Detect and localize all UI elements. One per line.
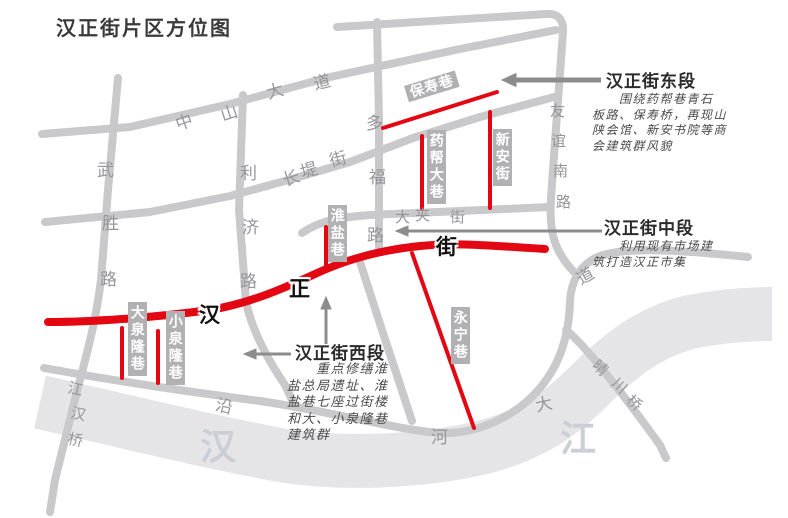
wusheng-road-char-0: 武 xyxy=(97,156,114,181)
huaiyan-alley-label: 淮盐巷 xyxy=(328,205,347,262)
page-title: 汉正街片区方位图 xyxy=(56,12,232,41)
annotation-west-body: 重点修缮淮 盐总局遗址、淮 盐巷七座过街楼 和大、小泉隆巷 建筑群 xyxy=(287,362,405,445)
youyi-south-road-char-1: 谊 xyxy=(551,130,566,151)
west-annotation-left-arrowhead xyxy=(244,349,256,359)
annotation-mid-body: 利用现有市场建 筑打造汉正市集 xyxy=(592,239,744,270)
hanzheng-street-name-char-1: 正 xyxy=(289,273,310,303)
annotation-west-heading: 汉正街西段 xyxy=(295,339,385,364)
yaobang-alley-label: 药帮大巷 xyxy=(427,130,446,204)
dajia-street-char-2: 街 xyxy=(450,206,465,227)
annotation-mid-heading: 汉正街中段 xyxy=(604,214,694,239)
hanzheng-map-figure: 汉正街片区方位图 中山大道长堤街武胜路利济路多福路大夹街友谊南路沿河大道江汉桥晴… xyxy=(0,0,788,518)
baoshou-alley-red xyxy=(383,92,497,128)
mid-annotation-arrowhead xyxy=(396,226,408,236)
youyi-south-road-char-0: 友 xyxy=(550,100,565,121)
wusheng-road-char-2: 路 xyxy=(100,265,117,290)
xiaoquanlong-alley-label: 小泉隆巷 xyxy=(166,311,185,385)
duofu-road-char-1: 福 xyxy=(369,163,386,188)
dajia-street-char-1: 夹 xyxy=(415,204,430,225)
liji-road-road xyxy=(239,95,293,402)
west-annotation-up-arrowhead xyxy=(321,297,331,309)
yongning-alley-label: 永宁巷 xyxy=(451,307,470,364)
dajia-street-char-0: 大 xyxy=(395,206,410,227)
liji-road-char-0: 利 xyxy=(240,159,257,184)
hanzheng-street-name-char-0: 汉 xyxy=(199,299,220,329)
daquanlong-alley-label: 大泉隆巷 xyxy=(128,302,147,376)
wusheng-road-char-1: 胜 xyxy=(102,209,119,234)
han-river-name-char-0: 汉 xyxy=(200,418,236,470)
duofu-road-char-2: 路 xyxy=(367,221,384,246)
annotation-east-heading: 汉正街东段 xyxy=(606,67,696,92)
liji-road-char-2: 路 xyxy=(240,267,257,292)
wusheng-jianghan-bridge-road xyxy=(50,78,118,512)
hanzheng-street-name-char-2: 街 xyxy=(436,231,457,261)
han-river-name-char-1: 江 xyxy=(560,410,596,462)
east-annotation-arrowhead xyxy=(502,74,516,87)
youyi-south-road-char-2: 南 xyxy=(553,160,568,181)
annotation-east-body: 围绕药帮巷青石 板路、保寿桥，再现山 陕会馆、新安书院等商 会建筑群风貌 xyxy=(592,92,744,154)
yanhe-avenue-char-1: 河 xyxy=(431,423,448,448)
xinan-street-label: 新安街 xyxy=(493,129,512,186)
youyi-south-road-char-3: 路 xyxy=(556,191,571,212)
duofu-road-char-0: 多 xyxy=(366,109,383,134)
liji-road-char-1: 济 xyxy=(242,213,259,238)
